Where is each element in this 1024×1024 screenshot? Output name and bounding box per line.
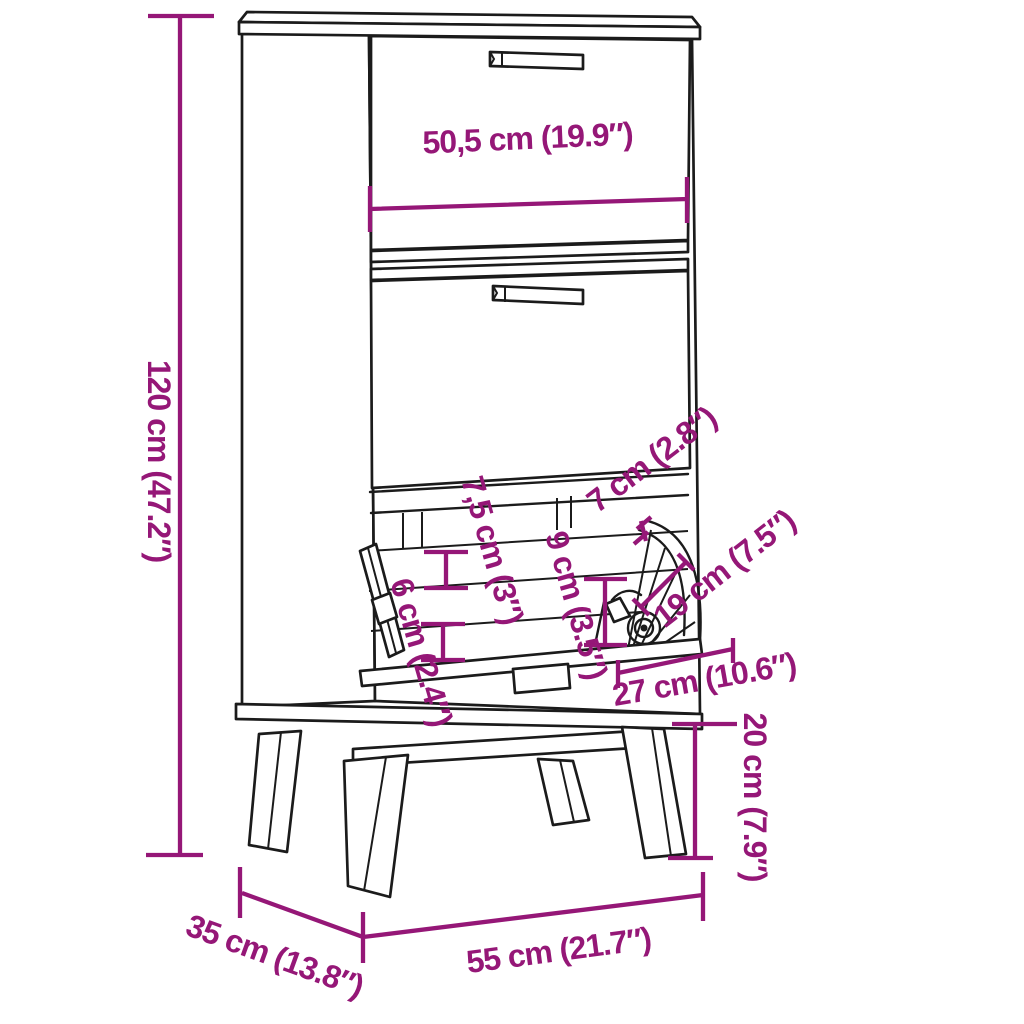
label-depth: 35 cm (13.8″) xyxy=(181,907,368,1004)
dim-line-depth-35cm xyxy=(240,867,363,937)
shoe-cabinet-diagram-svg: 50,5 cm (19.9″) 120 cm (47.2″) 7,5 cm (3… xyxy=(0,0,1024,1024)
flap-latch xyxy=(513,664,570,693)
handle-bar xyxy=(490,52,583,69)
leg-front-left xyxy=(344,755,408,897)
label-leg-height: 20 cm (7.9″) xyxy=(737,713,773,882)
drawer-handle-middle xyxy=(493,286,583,304)
dimension-diagram: 50,5 cm (19.9″) 120 cm (47.2″) 7,5 cm (3… xyxy=(0,0,1024,1024)
leg-back-right xyxy=(538,759,589,825)
label-bottom-width: 55 cm (21.7″) xyxy=(464,920,653,980)
label-height: 120 cm (47.2″) xyxy=(141,360,177,563)
side-panel xyxy=(242,32,375,707)
shoe-sole-center xyxy=(641,625,648,632)
drawer-handle-top xyxy=(490,52,583,69)
handle-bar xyxy=(493,286,583,304)
